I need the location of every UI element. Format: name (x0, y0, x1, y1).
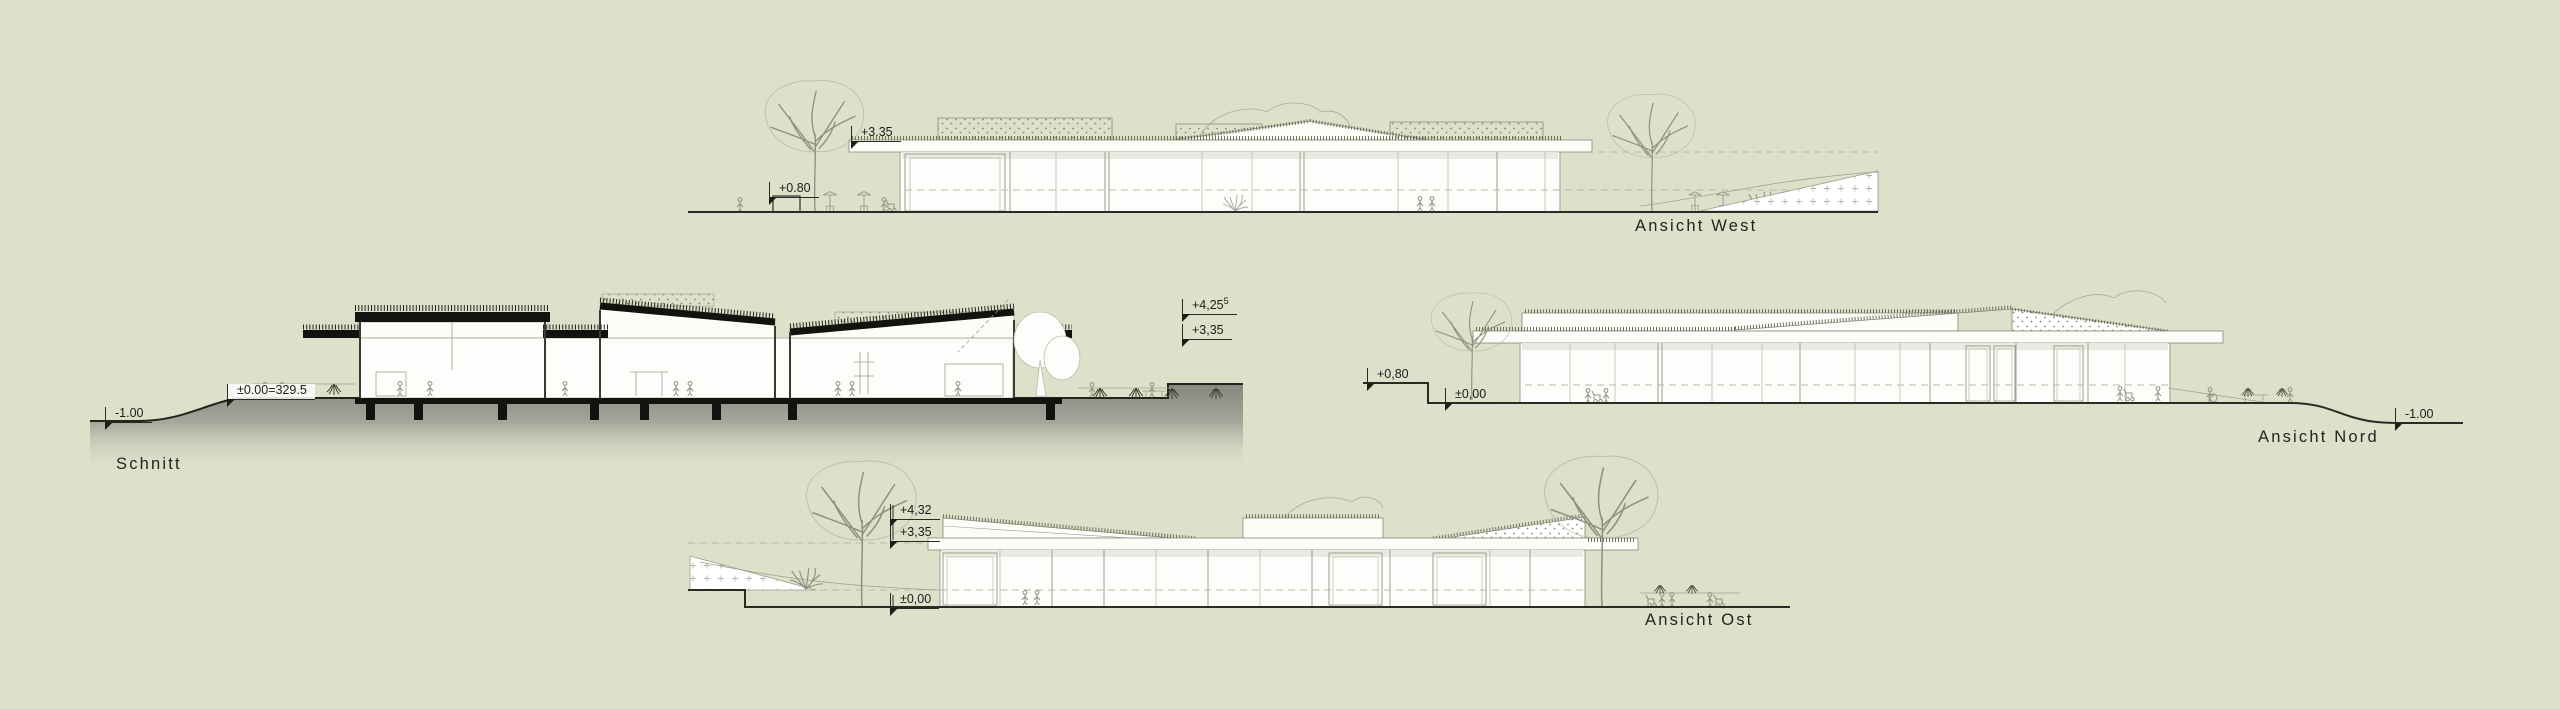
level-value: ±0.00=329.5 (237, 383, 307, 397)
level-value: +0.80 (779, 181, 811, 195)
title-ansicht-nord: Ansicht Nord (2258, 428, 2379, 447)
ansicht-ost-drawing (688, 456, 1790, 607)
level-marker-schnitt-high: +4,255 (1183, 299, 1237, 315)
level-value: +3,35 (1192, 323, 1224, 337)
level-marker-nord-minus1: -1.00 (2396, 408, 2442, 424)
title-schnitt: Schnitt (116, 455, 182, 474)
level-value: +4,25 (1192, 298, 1224, 312)
level-marker-nord-zero: ±0,00 (1446, 388, 1494, 404)
level-marker-ost-zero: ±0,00 (891, 593, 939, 609)
title-ansicht-ost: Ansicht Ost (1645, 611, 1754, 630)
drawing-sheet: +3.35 +0.80 -1.00 ±0.00=329.5 +4,255 +3,… (0, 0, 2560, 709)
elevations-and-section-canvas (0, 0, 2560, 709)
title-ansicht-west: Ansicht West (1635, 217, 1757, 236)
level-marker-west-planter: +0.80 (770, 182, 819, 198)
level-value: -1.00 (2405, 407, 2434, 421)
level-value: ±0,00 (900, 592, 931, 606)
level-value: +3,35 (900, 525, 932, 539)
level-marker-schnitt-minus1: -1.00 (106, 407, 152, 423)
ansicht-nord-drawing (1363, 291, 2463, 423)
level-marker-schnitt-datum: ±0.00=329.5 (228, 384, 315, 400)
ansicht-west-drawing (688, 81, 1878, 212)
level-value: +4,32 (900, 503, 932, 517)
level-marker-schnitt-roof: +3,35 (1183, 324, 1232, 340)
level-value: +0,80 (1377, 367, 1409, 381)
level-value: -1.00 (115, 406, 144, 420)
level-value: +3.35 (861, 125, 893, 139)
level-marker-nord-upper: +0,80 (1368, 368, 1417, 384)
level-value: ±0,00 (1455, 387, 1486, 401)
level-marker-west-roof: +3.35 (852, 126, 901, 142)
level-marker-ost-roof: +3,35 (891, 526, 940, 542)
level-marker-ost-high: +4,32 (891, 504, 940, 520)
